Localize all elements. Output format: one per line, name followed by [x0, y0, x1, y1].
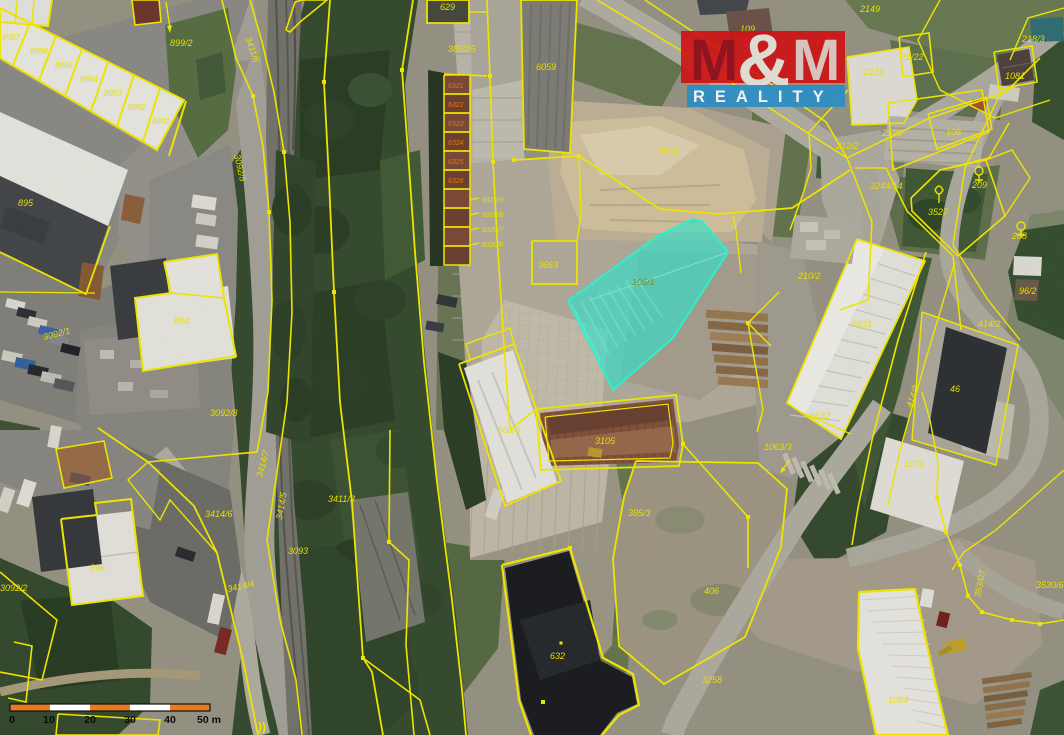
svg-text:10: 10: [43, 714, 55, 726]
svg-text:6321: 6321: [448, 83, 464, 90]
svg-text:894: 894: [174, 316, 189, 326]
svg-text:3244/14: 3244/14: [870, 181, 903, 191]
svg-text:46: 46: [950, 384, 960, 394]
svg-text:6325: 6325: [448, 159, 464, 166]
svg-text:1079: 1079: [904, 459, 924, 469]
svg-text:M: M: [792, 28, 840, 93]
svg-text:1084: 1084: [888, 695, 908, 705]
svg-text:20: 20: [84, 714, 96, 726]
svg-text:3093: 3093: [288, 546, 308, 556]
svg-text:M: M: [690, 28, 738, 93]
svg-text:6326: 6326: [448, 178, 464, 185]
svg-text:6320/9: 6320/9: [482, 197, 504, 204]
svg-text:3530/6: 3530/6: [1036, 580, 1064, 590]
svg-text:108: 108: [946, 127, 961, 137]
svg-text:6323: 6323: [448, 121, 464, 128]
svg-text:8995: 8995: [55, 61, 73, 70]
svg-text:896: 896: [90, 563, 105, 573]
svg-text:3414/6: 3414/6: [205, 509, 233, 519]
svg-text:0: 0: [9, 714, 15, 726]
svg-text:208: 208: [1011, 231, 1027, 241]
svg-text:3258: 3258: [702, 675, 722, 685]
svg-text:406: 406: [704, 586, 719, 596]
svg-text:3092/2: 3092/2: [0, 583, 28, 593]
svg-text:40: 40: [164, 714, 176, 726]
svg-text:30: 30: [124, 714, 136, 726]
svg-text:6631: 6631: [852, 319, 872, 329]
svg-text:6320/7: 6320/7: [482, 227, 505, 234]
svg-text:632: 632: [550, 651, 565, 661]
svg-text:6322: 6322: [448, 102, 464, 109]
svg-text:8991: 8991: [152, 117, 170, 126]
svg-text:3105: 3105: [595, 436, 616, 446]
svg-text:218/3: 218/3: [1021, 34, 1045, 44]
svg-text:3092/8: 3092/8: [210, 408, 238, 418]
svg-text:2120: 2120: [881, 128, 902, 138]
svg-text:209: 209: [971, 180, 987, 190]
svg-text:106/1: 106/1: [632, 277, 655, 287]
svg-text:6320/8: 6320/8: [482, 212, 504, 219]
svg-text:895: 895: [18, 198, 34, 208]
svg-text:2131: 2131: [863, 67, 884, 77]
svg-text:3663: 3663: [538, 260, 558, 270]
svg-text:8997: 8997: [2, 33, 20, 42]
svg-text:385/3: 385/3: [628, 508, 651, 518]
svg-text:8992: 8992: [128, 103, 146, 112]
svg-text:6324: 6324: [448, 140, 464, 147]
svg-text:1081: 1081: [1005, 71, 1025, 81]
svg-text:899/2: 899/2: [170, 38, 193, 48]
svg-text:3852/5: 3852/5: [448, 44, 477, 54]
svg-text:8994: 8994: [80, 75, 98, 84]
svg-text:1063/3: 1063/3: [764, 442, 792, 452]
svg-text:212/2: 212/2: [835, 141, 859, 151]
svg-text:96/2: 96/2: [1019, 286, 1037, 296]
svg-text:3411/3: 3411/3: [328, 494, 355, 504]
svg-text:8996: 8996: [30, 47, 48, 56]
svg-text:8993: 8993: [104, 89, 122, 98]
svg-text:6320/6: 6320/6: [482, 242, 504, 249]
svg-text:414/2: 414/2: [978, 319, 1001, 329]
svg-text:6059: 6059: [536, 62, 556, 72]
svg-text:REALITY: REALITY: [693, 88, 834, 106]
svg-text:)): )): [258, 720, 266, 734]
svg-text:6632: 6632: [810, 411, 830, 421]
svg-text:50 m: 50 m: [197, 714, 221, 726]
svg-text:3854: 3854: [658, 146, 678, 156]
svg-text:2149: 2149: [859, 4, 880, 14]
svg-text:603/3: 603/3: [498, 425, 521, 435]
svg-text:21/22: 21/22: [900, 52, 924, 62]
svg-text:3527: 3527: [928, 207, 949, 217]
svg-text:629: 629: [440, 2, 455, 12]
svg-text:210/2: 210/2: [797, 271, 821, 281]
